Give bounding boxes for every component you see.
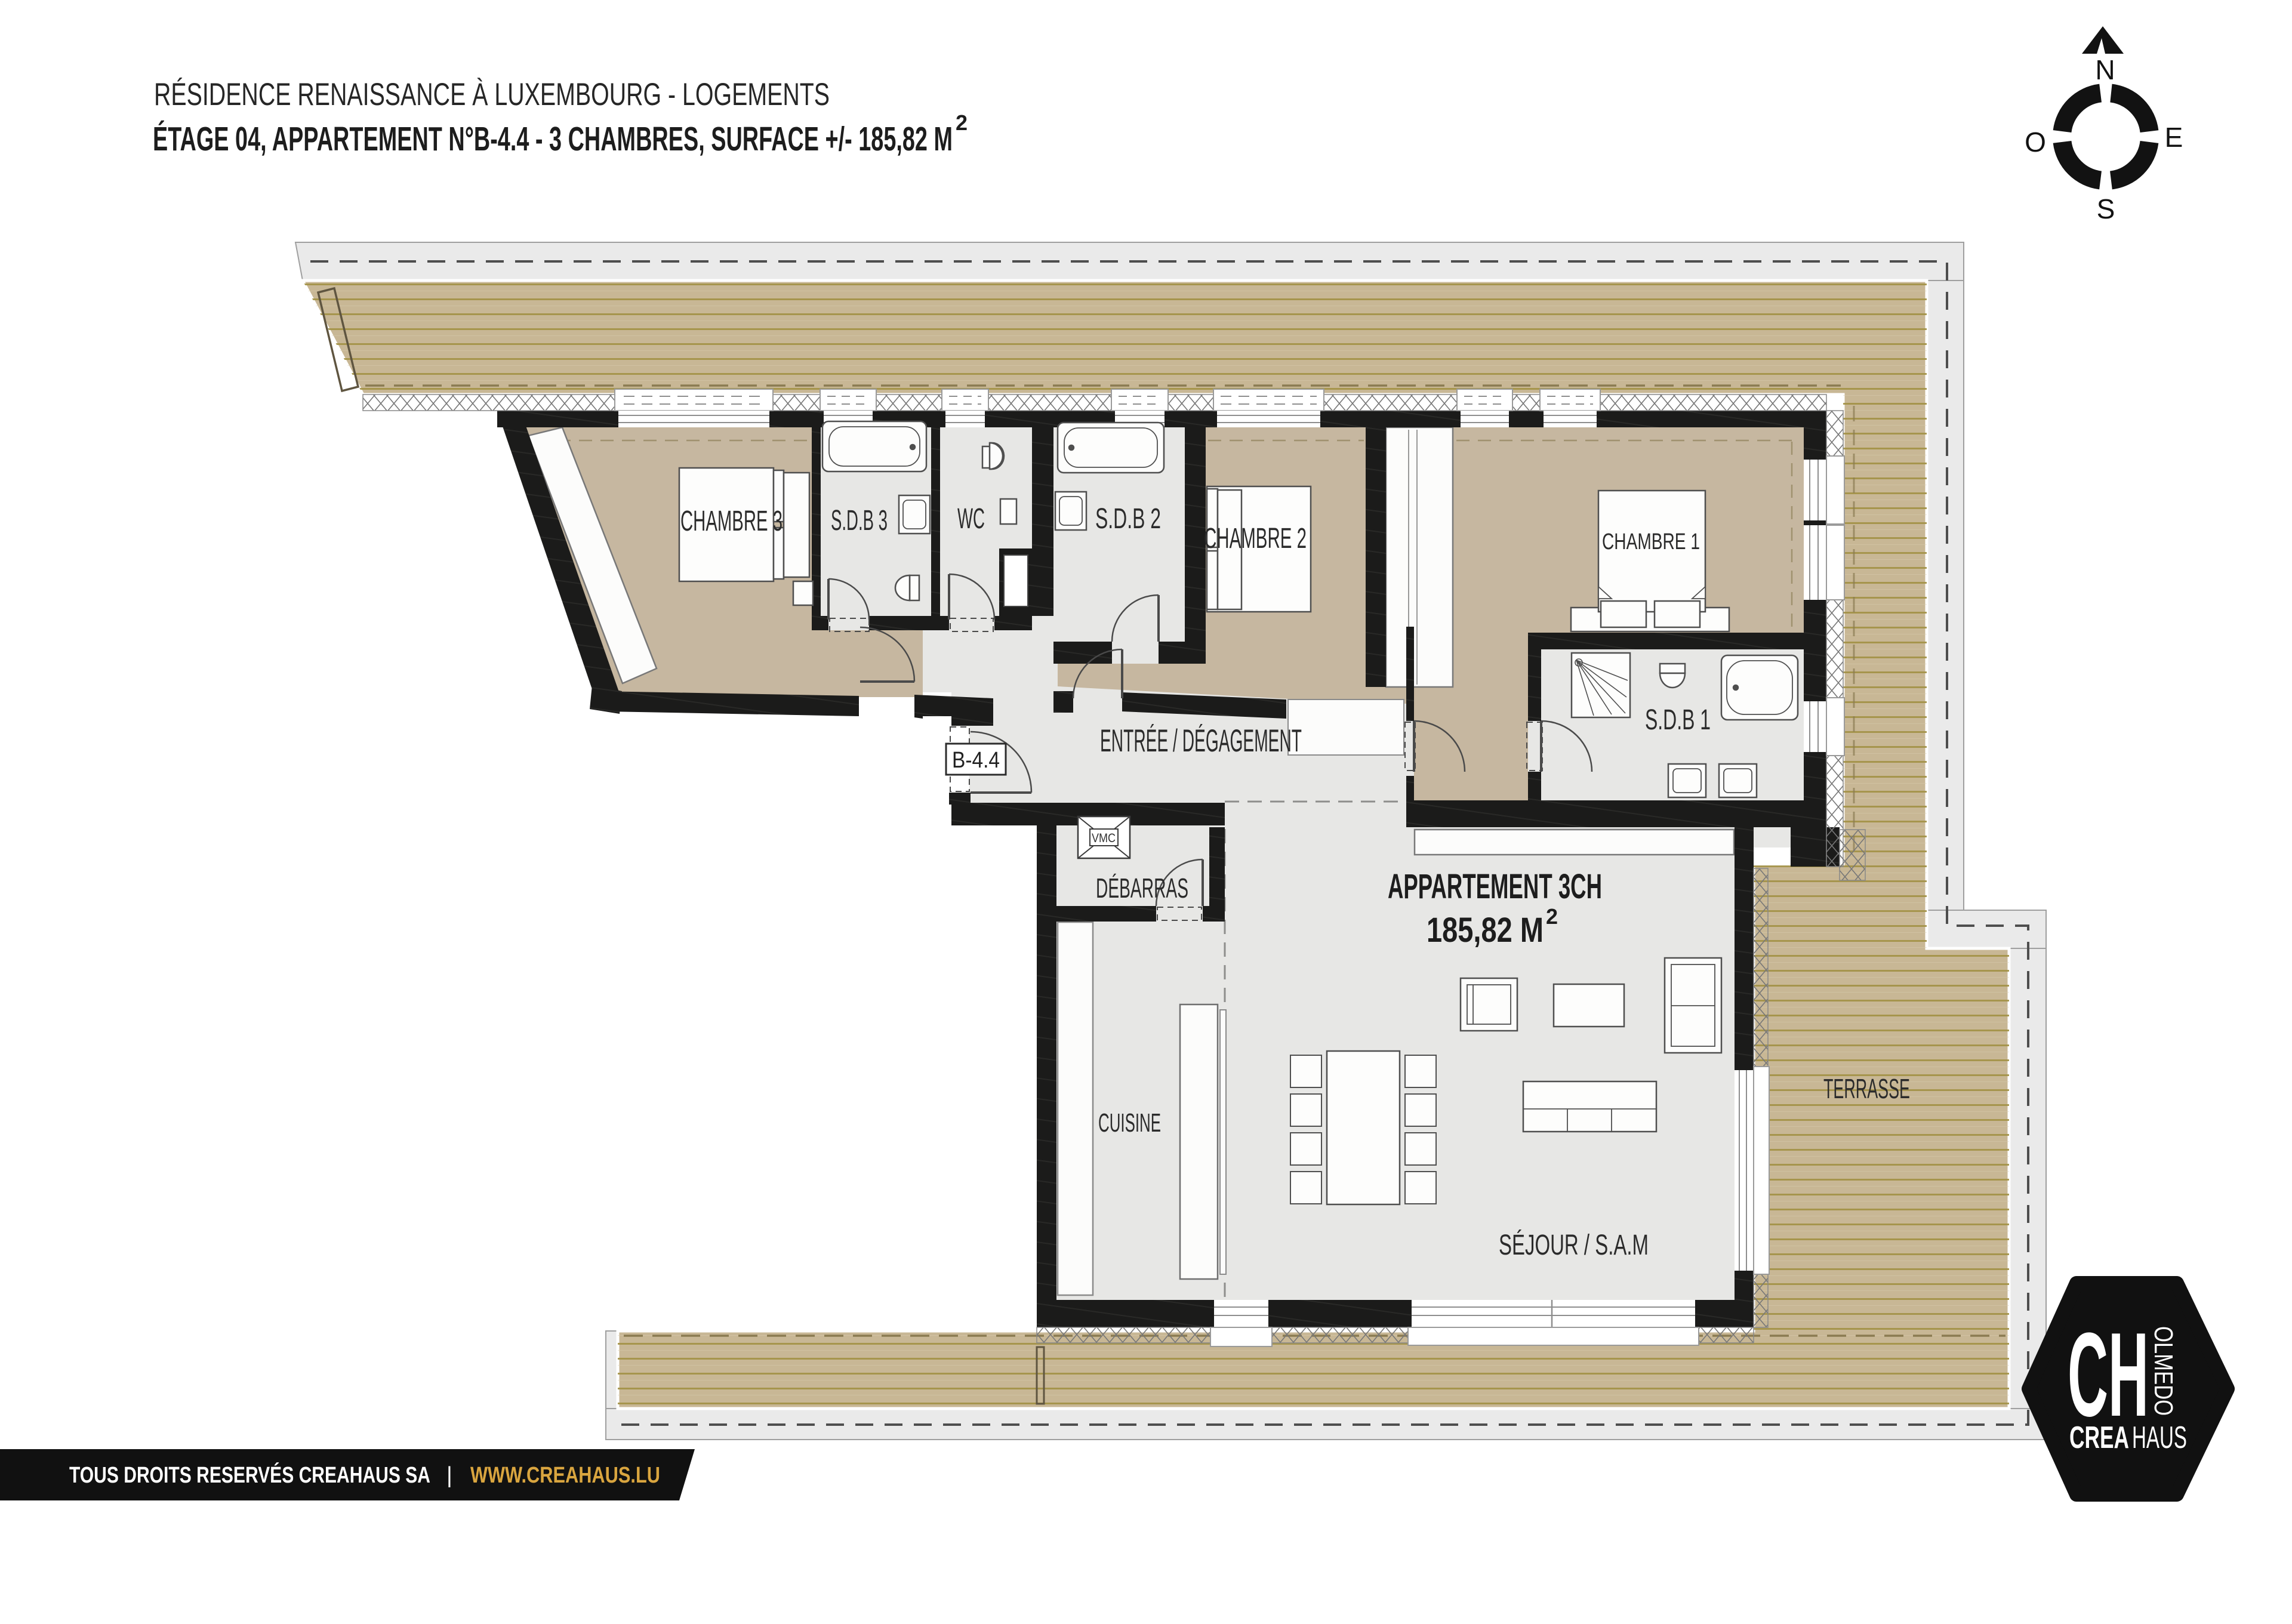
svg-text:185,82 M: 185,82 M [1427,911,1544,950]
svg-text:CREA: CREA [2069,1420,2129,1455]
svg-text:|: | [446,1463,452,1488]
svg-text:OLMEDO: OLMEDO [2149,1326,2178,1416]
svg-text:B-4.4: B-4.4 [952,748,1000,773]
svg-text:WC: WC [957,503,985,535]
svg-text:ÉTAGE 04, APPARTEMENT N°B-4.4: ÉTAGE 04, APPARTEMENT N°B-4.4 - 3 CHAMBR… [153,120,953,158]
svg-text:SÉJOUR / S.A.M: SÉJOUR / S.A.M [1499,1229,1649,1261]
svg-text:S.D.B 1: S.D.B 1 [1645,704,1711,736]
svg-text:S.D.B 2: S.D.B 2 [1095,503,1161,535]
svg-text:RÉSIDENCE RENAISSANCE À LUXEMB: RÉSIDENCE RENAISSANCE À LUXEMBOURG - LOG… [154,77,830,112]
svg-text:CUISINE: CUISINE [1098,1108,1161,1138]
svg-text:E: E [2165,122,2183,153]
svg-text:ENTRÉE / DÉGAGEMENT: ENTRÉE / DÉGAGEMENT [1100,723,1302,759]
svg-text:VMC: VMC [1092,831,1116,845]
svg-text:CHAMBRE 2: CHAMBRE 2 [1204,523,1307,554]
svg-text:DÉBARRAS: DÉBARRAS [1096,873,1188,904]
svg-text:CHAMBRE 1: CHAMBRE 1 [1602,529,1700,554]
svg-text:TOUS DROITS RESERVÉS CREAHAUS: TOUS DROITS RESERVÉS CREAHAUS SA [69,1462,430,1488]
svg-text:S: S [2097,193,2115,224]
svg-text:CHAMBRE 3: CHAMBRE 3 [680,506,783,537]
svg-text:S.D.B 3: S.D.B 3 [831,505,888,537]
svg-text:N: N [2095,54,2115,85]
svg-text:WWW.CREAHAUS.LU: WWW.CREAHAUS.LU [470,1463,660,1488]
svg-text:APPARTEMENT 3CH: APPARTEMENT 3CH [1388,867,1602,906]
svg-text:HAUS: HAUS [2132,1420,2187,1455]
svg-text:2: 2 [956,110,968,135]
svg-text:2: 2 [1546,904,1558,929]
svg-text:O: O [2025,127,2046,158]
svg-text:TERRASSE: TERRASSE [1823,1073,1910,1104]
